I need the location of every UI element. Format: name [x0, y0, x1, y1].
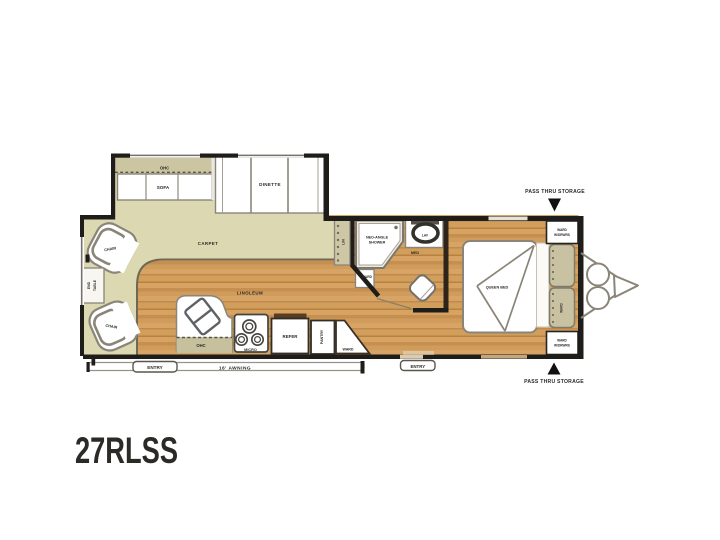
- svg-text:QUEEN BED: QUEEN BED: [486, 286, 509, 290]
- svg-text:SOFA: SOFA: [157, 185, 170, 190]
- svg-text:ENTRY: ENTRY: [410, 364, 425, 369]
- svg-text:SHOWER: SHOWER: [369, 241, 386, 245]
- svg-text:WARD: WARD: [557, 339, 567, 343]
- svg-text:WARD: WARD: [560, 302, 564, 312]
- svg-text:27RLSS: 27RLSS: [75, 430, 178, 471]
- svg-text:MICRO: MICRO: [244, 348, 257, 352]
- svg-text:LIN: LIN: [342, 239, 346, 245]
- svg-text:WARD: WARD: [362, 275, 373, 279]
- svg-text:PANTRY: PANTRY: [320, 329, 324, 344]
- svg-text:LINOLEUM: LINOLEUM: [237, 291, 263, 296]
- svg-text:NEO-ANGLE: NEO-ANGLE: [366, 236, 389, 240]
- svg-text:REFER: REFER: [283, 334, 299, 339]
- svg-text:OHC: OHC: [196, 343, 205, 348]
- svg-text:DINETTE: DINETTE: [259, 182, 281, 187]
- svg-text:END: END: [87, 281, 91, 289]
- svg-text:OHC: OHC: [160, 166, 169, 171]
- svg-text:ENTRY: ENTRY: [147, 365, 162, 370]
- svg-text:LAV: LAV: [422, 234, 429, 238]
- svg-text:TABLE: TABLE: [93, 279, 97, 291]
- svg-text:WARD: WARD: [343, 348, 354, 352]
- svg-text:WARD: WARD: [557, 228, 567, 232]
- svg-text:PASS THRU STORAGE: PASS THRU STORAGE: [525, 189, 585, 195]
- svg-text:CARPET: CARPET: [198, 241, 218, 246]
- svg-text:16' AWNING: 16' AWNING: [219, 365, 251, 371]
- svg-text:MED: MED: [411, 251, 420, 255]
- svg-text:W/DRWRS: W/DRWRS: [554, 233, 570, 237]
- svg-text:PASS THRU STORAGE: PASS THRU STORAGE: [524, 379, 584, 385]
- svg-text:W/DRWRS: W/DRWRS: [554, 344, 570, 348]
